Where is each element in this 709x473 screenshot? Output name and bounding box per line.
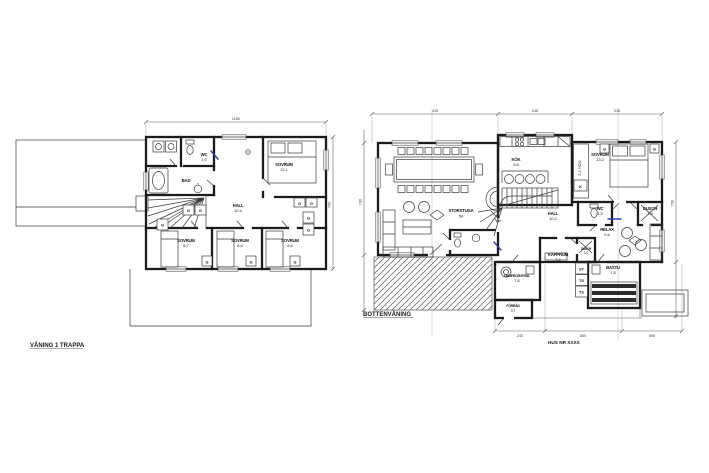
bedside-wardrobe-icon: G G (600, 144, 659, 153)
closet-height-note: 2,4 HÖG (577, 160, 582, 175)
armchair-icon (620, 224, 663, 260)
room-area-wc: 1,9 (597, 211, 602, 216)
room-area-hall: 10,2 (549, 216, 557, 221)
dim-left: 730 (359, 199, 363, 205)
right-plan-caption: BOTTENVÅNING (363, 311, 411, 318)
wardrobe-letter: G (307, 228, 310, 233)
room-area-sovrum-2: 8,7 (183, 243, 188, 248)
kitchen-counter-icon (500, 137, 570, 147)
ceiling-lamp-icon (246, 150, 251, 155)
dim-right: 790 (671, 200, 675, 206)
wardrobe-letter: G (161, 223, 164, 228)
fireplace-icon (486, 187, 498, 211)
room-area-hall: 10,4 (234, 208, 242, 213)
terrace-hatch (374, 257, 492, 310)
wardrobe-letter: G (310, 201, 313, 206)
closet-marker: TS (579, 290, 584, 295)
room-label-bad: BAD (182, 178, 191, 183)
house-id: HUS NR XXXX (548, 340, 581, 345)
wardrobe-letter: G (307, 216, 310, 221)
utility-closets: ST TS TS (576, 263, 588, 297)
room-area-undercentral: 7,6 (514, 278, 519, 283)
sofa-icon (383, 202, 444, 258)
kitchen-sofa-icon (502, 171, 548, 184)
dim-bottom-3: 590 (649, 334, 655, 338)
wardrobe-letter: G (187, 208, 190, 213)
room-area-kapprum: 7,4 (555, 257, 561, 262)
sink-icon (194, 183, 202, 193)
closet-marker: ST (579, 267, 585, 272)
dining-table-icon (386, 148, 483, 193)
dim-bottom-1: 240 (517, 334, 523, 338)
dim-top: 1180 (232, 117, 240, 121)
dim-right: 790 (328, 202, 332, 208)
dim-top-2: 248 (532, 109, 538, 113)
washing-machine-icon (153, 141, 177, 152)
room-area-bastu: 7,5 (610, 270, 615, 275)
closet-icon: K 2,4 HÖG (574, 144, 589, 198)
right-plan: 415 248 318 730 790 240 360 590 (359, 108, 689, 345)
room-area-kok: 9,8 (513, 162, 518, 167)
floor-plan-sheet: 1180 790 (0, 0, 709, 473)
right-plan-windows (376, 133, 664, 257)
room-area-sovrum: 13,2 (596, 157, 604, 162)
double-bed-icon (610, 144, 648, 187)
toilet-icon (186, 140, 194, 155)
stairs-icon (478, 188, 558, 236)
floor-plan-drawing: 1180 790 (0, 0, 709, 473)
room-label-forrad: FÖRRÅD (506, 303, 520, 308)
bathtub-icon (149, 168, 168, 193)
wardrobe-letter: G (249, 259, 252, 264)
room-area-forrad: 3,2 (511, 309, 516, 313)
single-bed-icon (161, 231, 283, 267)
wardrobe-letter: G (205, 259, 208, 264)
wardrobe-letter: G (199, 208, 202, 213)
room-area-relax: 9,6 (604, 232, 609, 237)
room-area-sovrum-4: 8,5 (287, 243, 292, 248)
room-area-dusch-2: 3,0 (584, 251, 589, 255)
toilet-icon (454, 233, 480, 247)
wardrobe-letter: G (293, 259, 296, 264)
room-area-storstuga: 54 (459, 214, 464, 219)
wardrobe-letter: G (653, 147, 656, 152)
room-area-sovrum-3: 8,6 (237, 243, 242, 248)
dim-bottom-2: 360 (580, 334, 586, 338)
left-plan: 1180 790 (16, 117, 335, 349)
wardrobe-letter: G (298, 201, 301, 206)
pen-mark (494, 219, 621, 250)
room-area-sovrum-master: 12,1 (280, 167, 288, 172)
left-plan-caption: VÅNING 1 TRAPPA (30, 342, 85, 349)
wardrobe-letter: G (603, 147, 606, 152)
closet-letter: K (579, 184, 582, 189)
closet-marker: TS (579, 278, 584, 283)
room-label-storstuga: STORSTUGA (448, 208, 473, 213)
room-area-dusch-1: 1,9 (647, 211, 652, 216)
door-leaves (170, 159, 288, 228)
room-area-wc: 2,0 (201, 157, 207, 162)
dim-top-1: 415 (432, 109, 438, 113)
dim-top-3: 318 (614, 109, 620, 113)
